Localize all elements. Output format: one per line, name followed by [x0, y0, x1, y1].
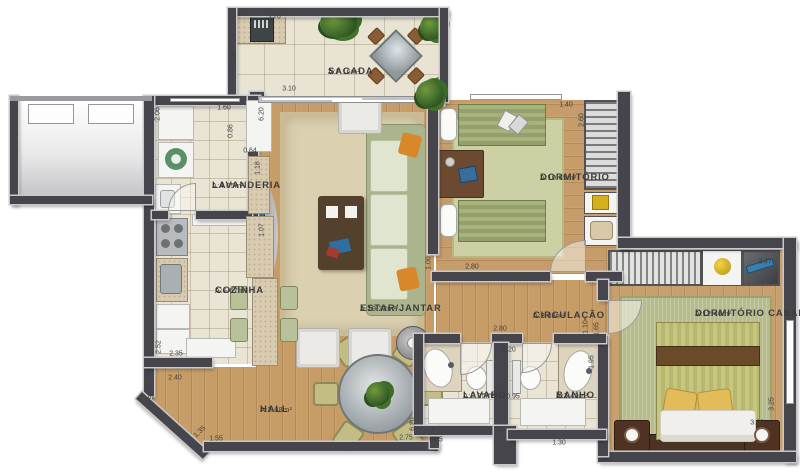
faucet	[586, 368, 592, 374]
room-area: A:19.22m²	[360, 304, 396, 313]
room-area: A:4.05m²	[212, 181, 244, 190]
dimension-label: 2.20	[502, 347, 516, 354]
dimension-label: 0.85	[429, 437, 443, 444]
wall	[492, 334, 522, 343]
wall	[152, 211, 168, 219]
bar-chair	[280, 286, 298, 310]
decor	[326, 206, 338, 218]
washer-door	[165, 148, 187, 170]
duvet	[660, 410, 756, 442]
dimension-label: 2.52	[156, 340, 163, 354]
yellow-jar	[714, 258, 731, 275]
dimension-label: 3.47	[758, 259, 772, 266]
wall	[228, 8, 448, 16]
desk	[438, 150, 484, 198]
dimension-label: 0.64	[243, 148, 257, 155]
dimension-label: 1.55	[209, 436, 223, 443]
dimension-label: 0.50	[149, 391, 156, 405]
dimension-label: 2.00	[231, 51, 238, 65]
dimension-label: 0.86	[228, 124, 235, 138]
dimension-label: 3.00	[750, 420, 764, 427]
dimension-label: 1.20	[418, 348, 425, 362]
window	[28, 104, 74, 124]
bed-runner	[656, 346, 760, 366]
wall	[618, 92, 630, 248]
room-area: A:2.25m²	[463, 391, 495, 400]
dimension-label: 2.60	[579, 113, 586, 127]
decor	[345, 206, 357, 218]
wall	[204, 442, 438, 451]
dimension-label: 1.65	[594, 322, 601, 336]
laundry-cabinet	[158, 106, 194, 140]
dimension-label: 3.25	[769, 397, 776, 411]
armchair	[296, 328, 340, 368]
dining-centerpiece	[366, 382, 390, 406]
dimension-label: 1.60	[217, 105, 231, 112]
nightstand-lamp	[624, 427, 640, 443]
bar-chair	[280, 318, 298, 342]
window	[170, 98, 240, 102]
wall	[598, 452, 796, 462]
dimension-label: 2.06	[155, 107, 162, 121]
window	[786, 320, 794, 404]
pillow	[440, 204, 457, 237]
dimension-label: 2.80	[493, 326, 507, 333]
wall-light	[10, 96, 152, 101]
wall	[432, 272, 550, 281]
dimension-label: 2.80	[465, 264, 479, 271]
dimension-label: 1.07	[259, 223, 266, 237]
desk-lamp	[445, 157, 455, 167]
wall	[144, 96, 154, 396]
bar-chair	[230, 318, 248, 342]
wall	[10, 196, 152, 204]
plant	[416, 80, 444, 108]
dimension-label: 1.10	[583, 320, 590, 334]
pillow	[440, 108, 457, 141]
room-area: A:2.88m²	[260, 405, 292, 414]
master-closet-hangers	[608, 250, 702, 286]
dimension-label: 1.00	[426, 256, 433, 270]
sofa-cushion	[370, 194, 408, 246]
burner	[174, 224, 183, 233]
faucet	[448, 362, 454, 368]
burner	[161, 224, 170, 233]
dimension-label: 6.20	[259, 107, 266, 121]
room-area: A:7.16m²	[328, 67, 360, 76]
window	[88, 104, 134, 124]
dimension-label: 2.40	[168, 375, 182, 382]
dimension-label: 0.95	[506, 394, 520, 401]
floor-plan: SACADA A:7.16m² LAVANDERIA A:4.05m² COZI…	[0, 0, 800, 472]
coffee-table	[318, 196, 364, 270]
wall	[494, 343, 508, 431]
wall	[144, 358, 212, 367]
burner	[161, 239, 170, 248]
window	[470, 94, 562, 100]
room-area: A:6.67m²	[215, 286, 247, 295]
wall	[414, 426, 502, 435]
wall	[618, 238, 796, 248]
dining-chair	[313, 382, 339, 406]
wall	[428, 92, 438, 254]
twin-bed	[458, 200, 546, 242]
fridge-divider	[156, 328, 190, 330]
throw-pillow	[396, 266, 420, 292]
dimension-label: 3.10	[282, 86, 296, 93]
basket	[590, 221, 613, 240]
room-area: A:10.65m²	[540, 173, 576, 182]
wall	[196, 211, 252, 219]
dimension-label: 1.40	[559, 102, 573, 109]
nightstand-lamp	[754, 427, 770, 443]
room-area: A:3.40m²	[556, 391, 588, 400]
dimension-label: 3.70	[267, 14, 281, 21]
dimension-label: 1.95	[589, 355, 596, 369]
wall	[598, 280, 608, 300]
wall	[508, 430, 606, 439]
dimension-label: 2.75	[399, 435, 413, 442]
powder-cabinet	[428, 398, 490, 424]
wall	[10, 96, 18, 204]
dimension-label: 1.30	[552, 440, 566, 447]
yellow-box	[592, 195, 609, 210]
dimension-label: 1.18	[255, 161, 262, 175]
laptop-icon	[458, 166, 478, 184]
kitchen-sink	[160, 264, 182, 294]
burner	[174, 239, 183, 248]
bath-cabinet	[520, 398, 586, 426]
stove	[156, 218, 188, 256]
room-area: A:3.08m²	[533, 311, 565, 320]
dimension-label: 6.20	[410, 417, 417, 431]
kitchen-low-counter	[186, 338, 236, 358]
room-area: A:12.46m²	[695, 309, 731, 318]
dimension-label: 2.35	[169, 351, 183, 358]
grill-grate	[254, 20, 270, 28]
